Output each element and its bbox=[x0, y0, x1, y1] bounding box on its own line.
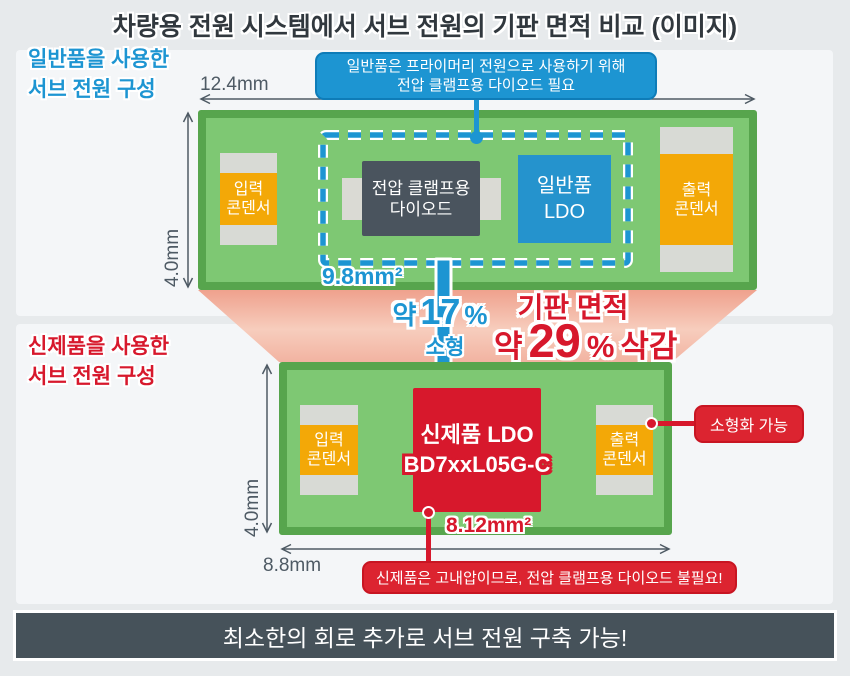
cap-label-line: 콘덴서 bbox=[674, 200, 718, 219]
new-ldo-name: 신제품 LDO bbox=[420, 420, 533, 450]
cap-label-line: 입력 bbox=[234, 180, 263, 199]
area-reduction-label: 약 29 % 삭감 bbox=[494, 313, 677, 368]
top-input-capacitor-label: 입력 콘덴서 bbox=[220, 173, 277, 225]
cap-label-line: 콘덴서 bbox=[226, 199, 270, 218]
capacitor-terminal bbox=[220, 225, 277, 245]
no-diode-needed-callout: 신제품은 고내압이므로, 전압 클램프용 다이오드 불필요! bbox=[362, 561, 737, 594]
bottom-section-label: 신제품을 사용한 서브 전원 구성 bbox=[28, 332, 169, 392]
capacitor-terminal bbox=[660, 127, 733, 154]
cap-label-line: 출력 bbox=[682, 181, 711, 200]
top-input-capacitor: 입력 콘덴서 bbox=[220, 153, 277, 245]
size-reduction-percent: % bbox=[464, 300, 487, 331]
bottom-output-capacitor-label: 출력 콘덴서 bbox=[596, 425, 653, 475]
top-section-label: 일반품을 사용한 서브 전원 구성 bbox=[28, 45, 169, 105]
bottom-output-capacitor: 출력 콘덴서 bbox=[596, 405, 653, 495]
bottom-input-capacitor: 입력 콘덴서 bbox=[300, 405, 358, 495]
cap-label-line: 출력 bbox=[610, 431, 639, 450]
compact-possible-callout: 소형화 가능 bbox=[694, 405, 804, 443]
top-board-height-label: 4.0mm bbox=[162, 218, 182, 298]
diode-required-callout: 일반품은 프라이머리 전원으로 사용하기 위해 전압 클램프용 다이오드 필요 bbox=[315, 52, 657, 100]
blue-callout-stem bbox=[474, 96, 479, 136]
cap-label-line: 콘덴서 bbox=[307, 450, 351, 469]
bottom-board-width-label: 8.8mm bbox=[263, 555, 321, 577]
ldo-area-size-label: 8.12mm² bbox=[446, 514, 531, 538]
blue-callout-dot bbox=[470, 131, 483, 144]
cap-label-line: 콘덴서 bbox=[602, 450, 646, 469]
top-board-height-arrow-icon bbox=[182, 110, 194, 290]
compact-callout-dot bbox=[645, 417, 658, 430]
clamp-area-size-label: 9.8mm² bbox=[322, 263, 403, 290]
no-diode-callout-dot bbox=[422, 506, 435, 519]
capacitor-terminal bbox=[220, 153, 277, 173]
bottom-input-capacitor-label: 입력 콘덴서 bbox=[300, 425, 358, 475]
top-section-label-line2: 서브 전원 구성 bbox=[28, 75, 169, 105]
diode-required-callout-line2: 전압 클램프용 다이오드 필요 bbox=[321, 76, 651, 95]
cap-label-line: 입력 bbox=[314, 431, 343, 450]
bottom-board-width-arrow-icon bbox=[279, 543, 672, 555]
capacitor-terminal bbox=[300, 475, 358, 495]
footer-banner: 최소한의 회로 추가로 서브 전원 구축 가능! bbox=[13, 610, 837, 661]
top-output-capacitor-label: 출력 콘덴서 bbox=[660, 154, 733, 245]
bottom-board-height-label: 4.0mm bbox=[242, 468, 262, 548]
clamp-area-dashed-outline bbox=[318, 130, 634, 270]
area-reduction-percent: % bbox=[587, 329, 615, 365]
bottom-section-label-line2: 서브 전원 구성 bbox=[28, 362, 169, 392]
area-reduction-suffix: 삭감 bbox=[620, 321, 677, 366]
area-reduction-value: 29 bbox=[529, 313, 581, 368]
size-reduction-approx: 약 bbox=[392, 295, 416, 332]
top-output-capacitor: 출력 콘덴서 bbox=[660, 127, 733, 272]
size-reduction-value: 17 bbox=[420, 291, 460, 333]
capacitor-terminal bbox=[300, 405, 358, 425]
area-reduction-approx: 약 bbox=[494, 321, 523, 366]
bottom-section-label-line1: 신제품을 사용한 bbox=[28, 332, 169, 362]
page-title: 차량용 전원 시스템에서 서브 전원의 기판 면적 비교 (이미지) bbox=[0, 7, 850, 43]
diode-required-callout-line1: 일반품은 프라이머리 전원으로 사용하기 위해 bbox=[321, 57, 651, 76]
new-ldo-chip: 신제품 LDO BD7xxL05G-C bbox=[413, 388, 541, 512]
capacitor-terminal bbox=[660, 245, 733, 272]
no-diode-callout-stem bbox=[426, 512, 431, 564]
top-section-label-line1: 일반품을 사용한 bbox=[28, 45, 169, 75]
new-ldo-part-number: BD7xxL05G-C bbox=[404, 450, 551, 480]
capacitor-terminal bbox=[596, 475, 653, 495]
infographic-canvas: 차량용 전원 시스템에서 서브 전원의 기판 면적 비교 (이미지) 일반품을 … bbox=[0, 0, 850, 676]
